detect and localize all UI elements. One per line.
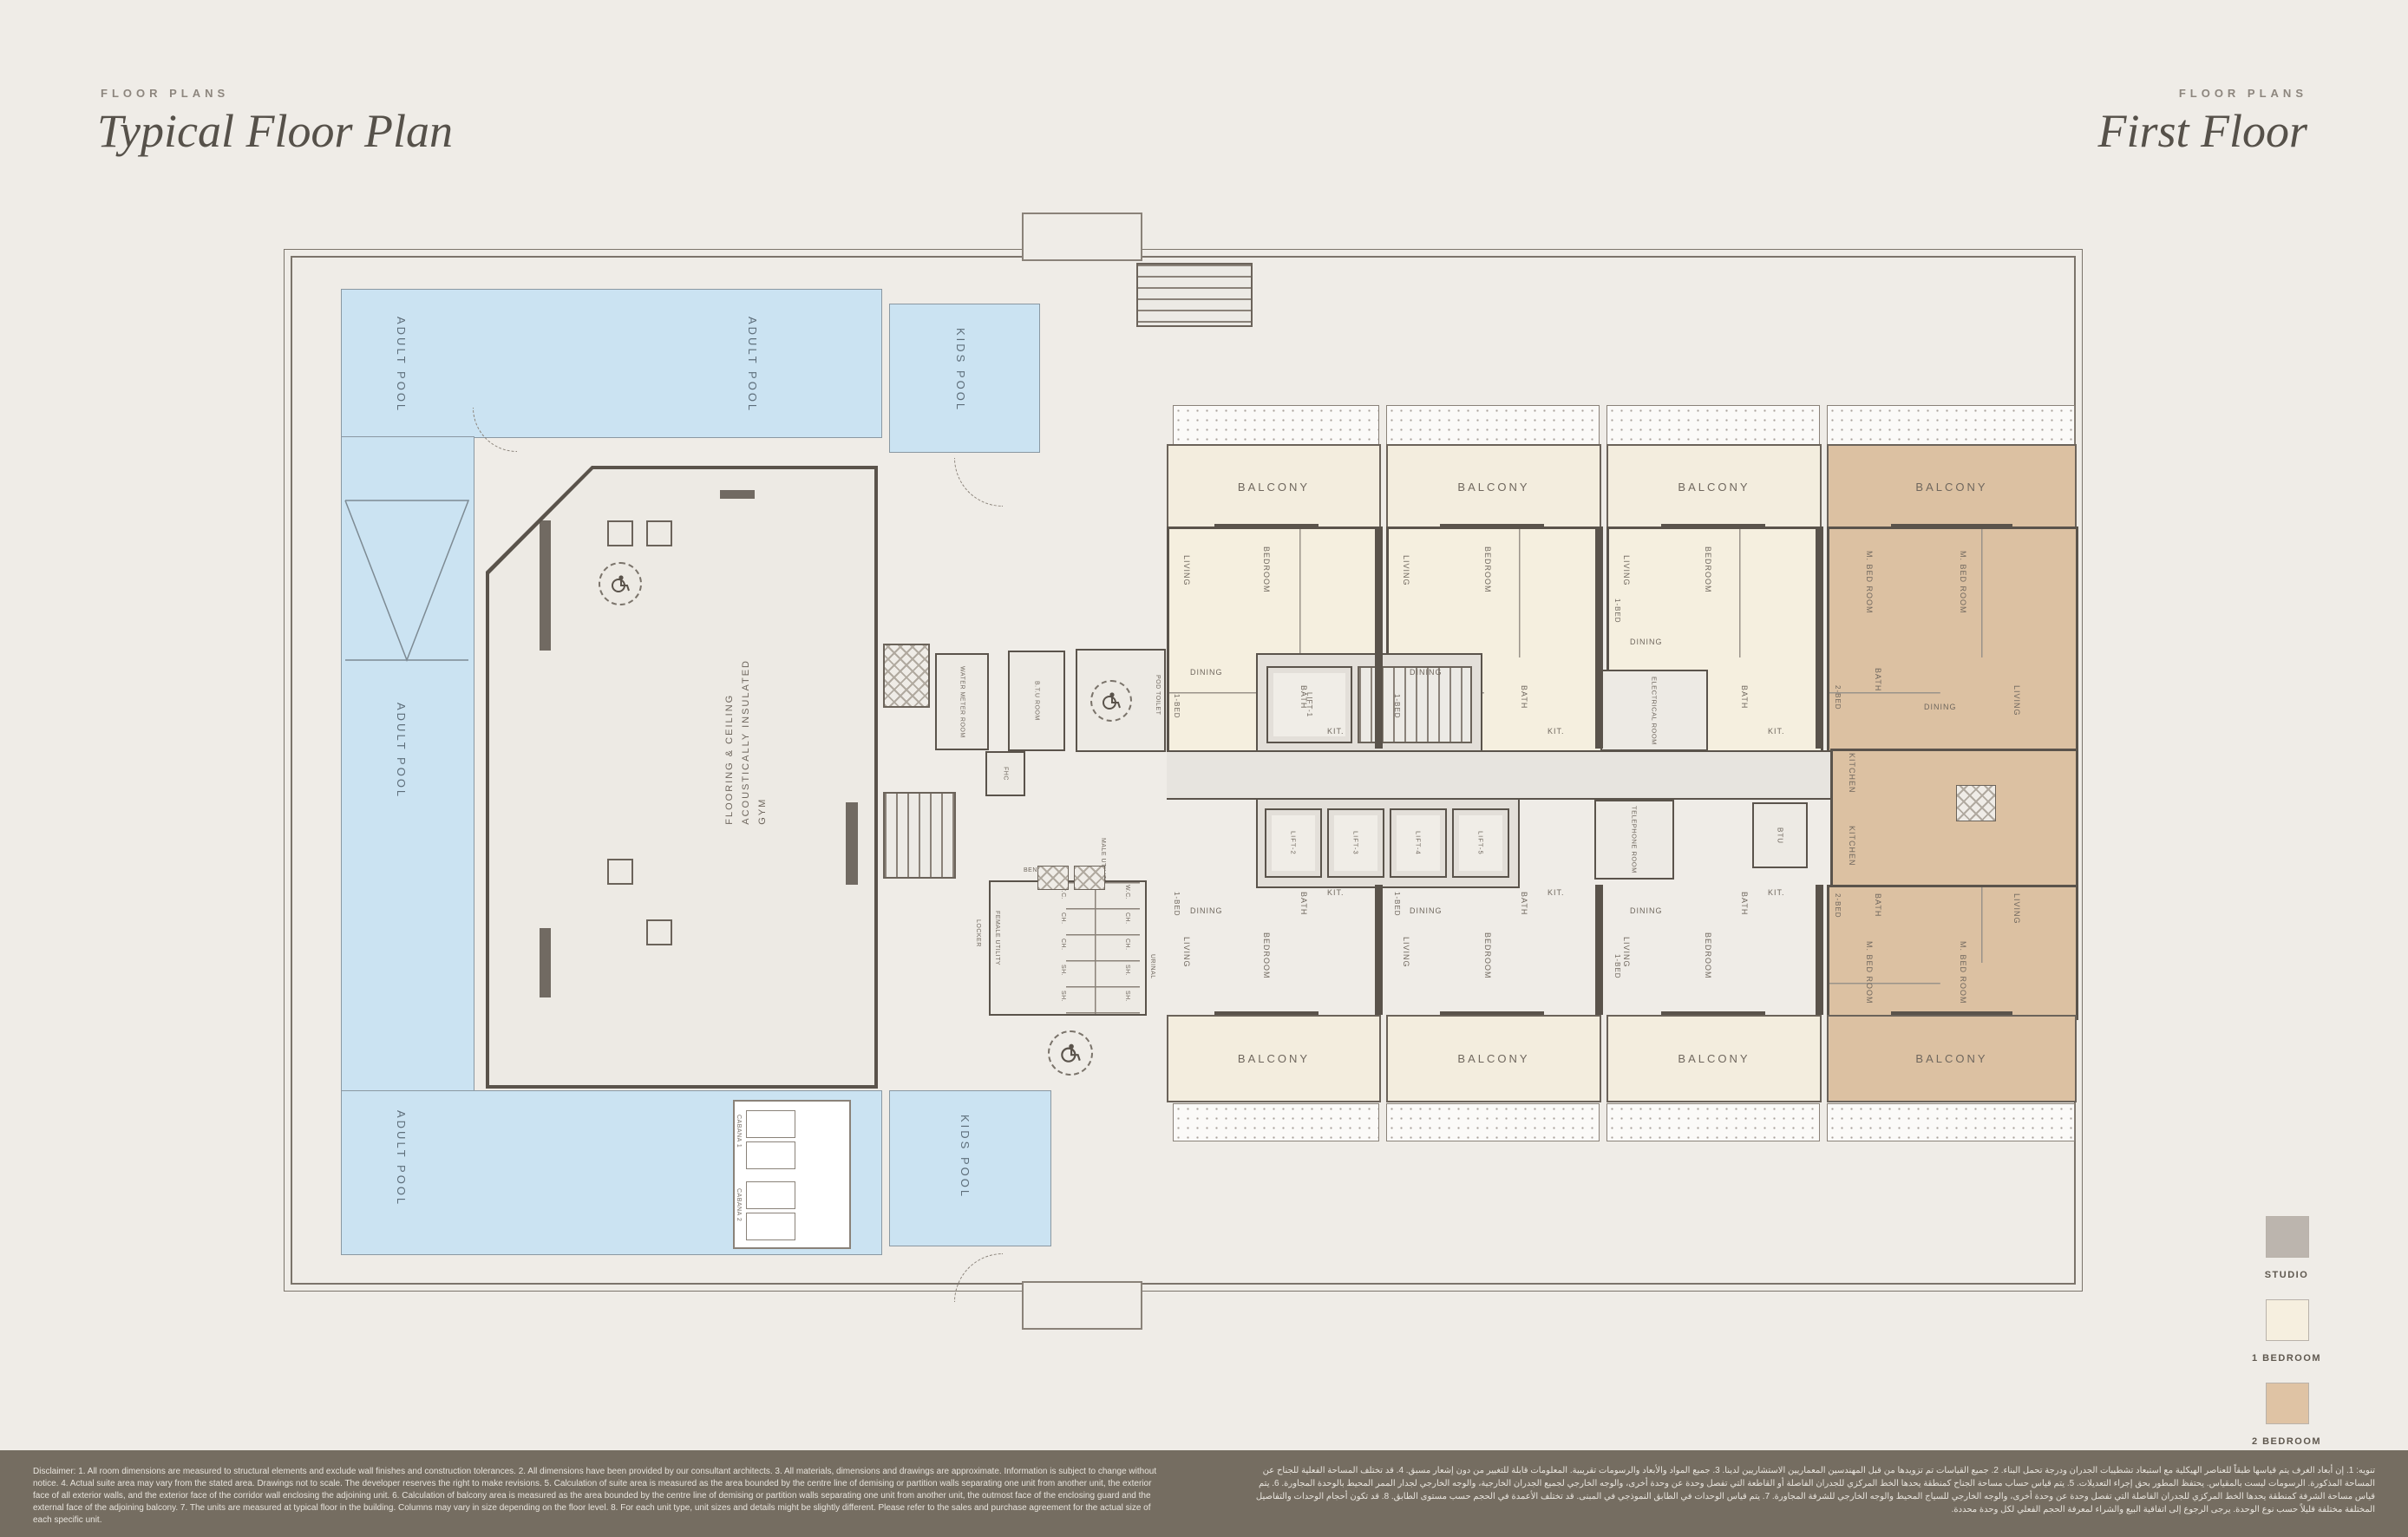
balcony-2bed: BALCONY bbox=[1827, 1015, 2077, 1102]
window-bar bbox=[1661, 524, 1765, 529]
floor-plan-sheet: FLOOR PLANS Typical Floor Plan FLOOR PLA… bbox=[0, 0, 2408, 1537]
bedroom-label: BEDROOM bbox=[1483, 932, 1492, 979]
sh-label: SH. bbox=[1060, 991, 1066, 1002]
ch-label: CH. bbox=[1124, 912, 1130, 925]
bath-label: BATH bbox=[1874, 893, 1882, 917]
btu-room-label: B.T.U ROOM bbox=[1034, 681, 1040, 721]
dining-label: DINING bbox=[1190, 906, 1223, 915]
legend-swatch-2bedroom bbox=[2266, 1383, 2309, 1424]
electrical-room-label: ELECTRICAL ROOM bbox=[1651, 677, 1659, 745]
kit-label: KIT. bbox=[1768, 888, 1785, 897]
bedroom-label: BEDROOM bbox=[1262, 932, 1271, 979]
gym-equipment-bench bbox=[720, 490, 755, 499]
balcony: BALCONY bbox=[1386, 444, 1601, 530]
living-label: LIVING bbox=[1622, 555, 1631, 586]
lift-5: LIFT-5 bbox=[1452, 808, 1509, 878]
bedroom-label: BEDROOM bbox=[1704, 932, 1712, 979]
pod-toilet-room: POD TOILET bbox=[1076, 649, 1166, 752]
locker-label: LOCKER bbox=[975, 919, 981, 947]
cabana-lounger bbox=[746, 1141, 795, 1169]
core-staircase bbox=[883, 792, 956, 879]
bedroom-label: BEDROOM bbox=[1262, 546, 1271, 593]
gym-label: FLOORING & CEILING ACOUSTICALLY INSULATE… bbox=[724, 659, 768, 825]
legend-label-studio: STUDIO bbox=[2255, 1270, 2318, 1280]
adult-pool-label-1: ADULT POOL bbox=[395, 317, 408, 413]
party-wall bbox=[1595, 527, 1603, 749]
duct-shaft bbox=[1074, 866, 1105, 890]
dining-label: DINING bbox=[1630, 906, 1663, 915]
lift-5-label: LIFT-5 bbox=[1477, 831, 1485, 855]
one-bed-label: 1-BED bbox=[1393, 694, 1401, 719]
m-bedroom-label: M. BED ROOM bbox=[1959, 551, 1967, 614]
kitchen-label: KITCHEN bbox=[1848, 826, 1856, 867]
gym-label-line1: GYM bbox=[757, 659, 768, 825]
gym-equipment-rack bbox=[540, 928, 551, 997]
balcony-label: BALCONY bbox=[1238, 1052, 1310, 1065]
corridor bbox=[1167, 750, 1830, 800]
balcony-label: BALCONY bbox=[1457, 1052, 1529, 1065]
balcony-label: BALCONY bbox=[1915, 481, 1987, 494]
living-label: LIVING bbox=[1182, 555, 1191, 586]
lift-2: LIFT-2 bbox=[1265, 808, 1322, 878]
eyebrow-right: FLOOR PLANS bbox=[2179, 87, 2307, 100]
one-bed-label: 1-BED bbox=[1173, 694, 1181, 719]
balcony: BALCONY bbox=[1167, 444, 1381, 530]
window-bar bbox=[1214, 524, 1319, 529]
kit-label: KIT. bbox=[1548, 727, 1565, 736]
ac-ledge bbox=[1606, 1103, 1820, 1141]
balcony-label: BALCONY bbox=[1915, 1052, 1987, 1065]
fhc-room: FHC bbox=[985, 751, 1025, 796]
cabana-lounger bbox=[746, 1181, 795, 1209]
dining-label: DINING bbox=[1190, 668, 1223, 677]
ac-ledge bbox=[1606, 405, 1820, 445]
sh-label: SH. bbox=[1124, 991, 1130, 1002]
entrance-canopy-top bbox=[1022, 213, 1142, 261]
pod-toilet-label: POD TOILET bbox=[1155, 675, 1161, 715]
balcony-label: BALCONY bbox=[1678, 481, 1750, 494]
window-bar bbox=[1440, 524, 1544, 529]
adult-pool-label-2: ADULT POOL bbox=[746, 317, 759, 413]
accessibility-icon bbox=[1090, 680, 1132, 722]
changing-rooms bbox=[989, 880, 1147, 1016]
ch-label: CH. bbox=[1060, 939, 1066, 951]
m-bedroom-label: M. BED ROOM bbox=[1959, 941, 1967, 1004]
one-bed-label: 1-BED bbox=[1173, 892, 1181, 917]
kit-label: KIT. bbox=[1548, 888, 1565, 897]
lift-2-label: LIFT-2 bbox=[1290, 831, 1298, 855]
window-bar bbox=[1891, 524, 2012, 529]
sh-label: SH. bbox=[1060, 965, 1066, 976]
bath-label: BATH bbox=[1740, 892, 1749, 915]
gym-label-line2: ACOUSTICALLY INSULATED bbox=[741, 659, 751, 825]
duct-shaft bbox=[1956, 785, 1996, 821]
kitchen-label: KITCHEN bbox=[1848, 753, 1856, 794]
cabana-lounger bbox=[746, 1213, 795, 1240]
lift-4: LIFT-4 bbox=[1390, 808, 1447, 878]
btu-label: BTU bbox=[1777, 827, 1784, 844]
balcony-2bed: BALCONY bbox=[1827, 444, 2077, 530]
accessibility-icon bbox=[599, 562, 642, 605]
bath-label: BATH bbox=[1520, 685, 1528, 709]
ac-ledge bbox=[1173, 405, 1379, 445]
disclaimer-arabic: تنويه: 1. إن أبعاد الغرف يتم قياسها طبقا… bbox=[1247, 1464, 2375, 1516]
female-utility-label: FEMALE UTILITY bbox=[994, 911, 1000, 965]
balcony-label: BALCONY bbox=[1457, 481, 1529, 494]
legend-swatch-1bedroom bbox=[2266, 1299, 2309, 1341]
legend: STUDIO 1 BEDROOM 2 BEDROOM bbox=[2266, 1216, 2328, 1447]
living-label: LIVING bbox=[2012, 685, 2021, 716]
bath-label: BATH bbox=[1520, 892, 1528, 915]
ch-label: CH. bbox=[1060, 912, 1066, 925]
ac-ledge bbox=[1827, 405, 2075, 445]
two-bed-label: 2-BED bbox=[1834, 685, 1842, 710]
sh-label: SH. bbox=[1124, 965, 1130, 976]
party-wall bbox=[1375, 527, 1383, 749]
party-wall bbox=[1816, 527, 1823, 749]
balcony: BALCONY bbox=[1386, 1015, 1601, 1102]
living-label: LIVING bbox=[1402, 937, 1410, 968]
living-label: LIVING bbox=[1182, 937, 1191, 968]
gym-equipment-rack bbox=[540, 520, 551, 651]
accessibility-icon bbox=[1048, 1030, 1093, 1076]
adult-pool-label-4: ADULT POOL bbox=[395, 1110, 408, 1207]
btu-room: B.T.U ROOM bbox=[1008, 651, 1065, 751]
two-bed-label: 2-BED bbox=[1834, 893, 1842, 919]
bath-label: BATH bbox=[1740, 685, 1749, 709]
footer-bar: Disclaimer: 1. All room dimensions are m… bbox=[0, 1450, 2408, 1537]
eyebrow-left: FLOOR PLANS bbox=[101, 87, 229, 100]
pool-depth-triangle bbox=[344, 499, 470, 664]
cabana1-label: CABANA 1 bbox=[736, 1115, 742, 1148]
gym-equipment-rack bbox=[846, 802, 858, 885]
disclaimer-english: Disclaimer: 1. All room dimensions are m… bbox=[33, 1466, 1169, 1527]
balcony-label: BALCONY bbox=[1238, 481, 1310, 494]
party-wall bbox=[1816, 885, 1823, 1015]
lift-4-label: LIFT-4 bbox=[1415, 831, 1423, 855]
entry-stairs bbox=[1136, 263, 1253, 327]
living-label: LIVING bbox=[1402, 555, 1410, 586]
one-bed-label: 1-BED bbox=[1613, 954, 1621, 979]
water-meter-room-label: WATER METER ROOM bbox=[959, 666, 965, 738]
living-label: LIVING bbox=[1622, 937, 1631, 968]
balcony: BALCONY bbox=[1167, 1015, 1381, 1102]
kit-label: KIT. bbox=[1327, 727, 1345, 736]
bath-label: BATH bbox=[1299, 892, 1308, 915]
dining-label: DINING bbox=[1410, 668, 1443, 677]
dining-label: DINING bbox=[1630, 638, 1663, 646]
duct-shaft bbox=[1037, 866, 1069, 890]
gym-equipment-machine bbox=[607, 859, 633, 885]
lift-3-label: LIFT-3 bbox=[1352, 831, 1360, 855]
bath-label: BATH bbox=[1299, 685, 1308, 709]
kit-label: KIT. bbox=[1768, 727, 1785, 736]
adult-pool-label-3: ADULT POOL bbox=[395, 703, 408, 799]
ac-ledge bbox=[1386, 405, 1600, 445]
legend-label-2bedroom: 2 BEDROOM bbox=[2245, 1436, 2328, 1447]
service-shaft bbox=[883, 644, 930, 708]
unit-2bed-mid bbox=[1830, 749, 2078, 890]
wc-label: W.C. bbox=[1124, 885, 1130, 899]
legend-swatch-studio bbox=[2266, 1216, 2309, 1258]
dining-label: DINING bbox=[1410, 906, 1443, 915]
one-bed-label: 1-BED bbox=[1393, 892, 1401, 917]
telephone-room-label: TELEPHONE ROOM bbox=[1631, 806, 1639, 873]
legend-label-1bedroom: 1 BEDROOM bbox=[2245, 1353, 2328, 1364]
lift-3: LIFT-3 bbox=[1327, 808, 1384, 878]
bedroom-label: BEDROOM bbox=[1704, 546, 1712, 593]
ac-ledge bbox=[1386, 1103, 1600, 1141]
gym-equipment-machine bbox=[646, 919, 672, 945]
kids-pool-top-label: KIDS POOL bbox=[954, 328, 967, 412]
ac-ledge bbox=[1827, 1103, 2075, 1141]
bedroom-label: BEDROOM bbox=[1483, 546, 1492, 593]
telephone-room: TELEPHONE ROOM bbox=[1594, 800, 1674, 880]
entrance-canopy-bottom bbox=[1022, 1281, 1142, 1330]
page-title-right: First Floor bbox=[2097, 104, 2307, 158]
btu-room-2: BTU bbox=[1752, 802, 1808, 868]
gym-equipment-machine bbox=[607, 520, 633, 546]
ac-ledge bbox=[1173, 1103, 1379, 1141]
gym-equipment-machine bbox=[646, 520, 672, 546]
fhc-label: FHC bbox=[1003, 767, 1009, 781]
party-wall bbox=[1375, 885, 1383, 1015]
dining-label: DINING bbox=[1924, 703, 1957, 711]
adult-pool-top bbox=[341, 289, 882, 438]
balcony-label: BALCONY bbox=[1678, 1052, 1750, 1065]
urinal-label: URINAL bbox=[1149, 954, 1155, 979]
electrical-room: ELECTRICAL ROOM bbox=[1600, 670, 1708, 751]
kids-pool-bottom-label: KIDS POOL bbox=[959, 1115, 972, 1199]
cabana2-label: CABANA 2 bbox=[736, 1188, 742, 1221]
balcony: BALCONY bbox=[1606, 1015, 1822, 1102]
party-wall bbox=[1595, 885, 1603, 1015]
cabana-lounger bbox=[746, 1110, 795, 1138]
page-title-left: Typical Floor Plan bbox=[97, 104, 453, 158]
water-meter-room: WATER METER ROOM bbox=[935, 653, 989, 750]
ch-label: CH. bbox=[1124, 939, 1130, 951]
m-bedroom-label: M. BED ROOM bbox=[1865, 551, 1874, 614]
bath-label: BATH bbox=[1874, 668, 1882, 691]
balcony: BALCONY bbox=[1606, 444, 1822, 530]
gym-label-line3: FLOORING & CEILING bbox=[724, 659, 735, 825]
m-bedroom-label: M. BED ROOM bbox=[1865, 941, 1874, 1004]
kit-label: KIT. bbox=[1327, 888, 1345, 897]
one-bed-label: 1-BED bbox=[1613, 598, 1621, 624]
living-label: LIVING bbox=[2012, 893, 2021, 925]
